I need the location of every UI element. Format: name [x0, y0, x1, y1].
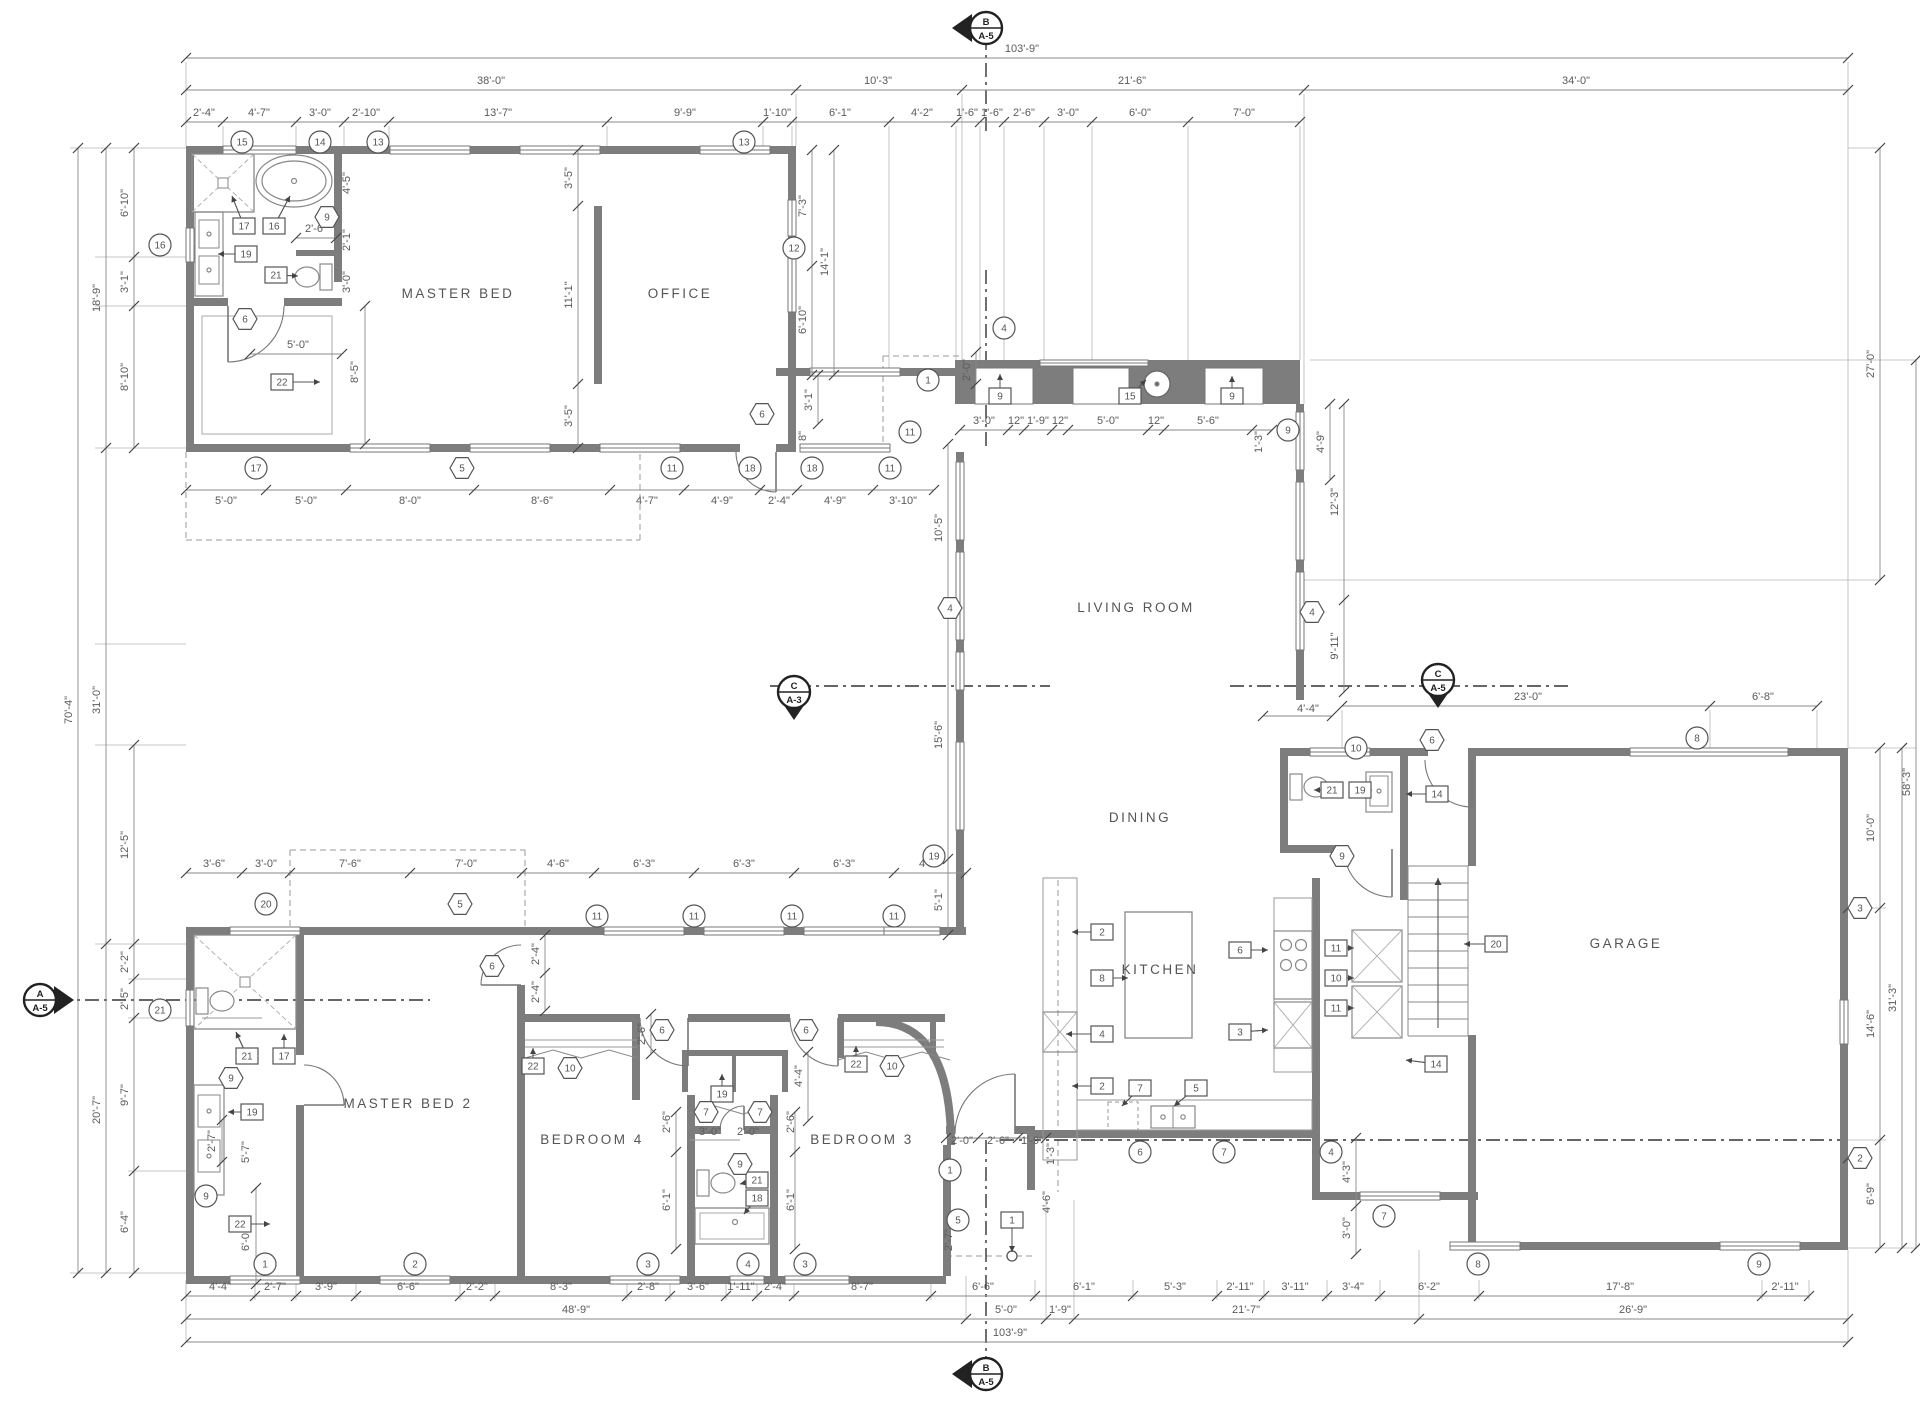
dim-label: 4'-6" [1041, 1191, 1053, 1213]
door-tag-7: 7 [748, 1102, 772, 1123]
window-tag-21: 21 [149, 999, 171, 1021]
window-tag-label: 9 [1285, 426, 1291, 437]
dim-label: 3'-5" [563, 167, 575, 189]
dim-label: 8'-5" [349, 361, 361, 383]
dim-label: 4'-6" [547, 858, 569, 870]
door-tag-10: 10 [558, 1058, 582, 1079]
dim-label: 3'-0" [341, 271, 353, 293]
dim-label: 2'-2" [466, 1281, 488, 1293]
door-tag-6: 6 [233, 309, 257, 330]
section-letter: B [983, 1363, 990, 1374]
window-tag-label: 11 [667, 464, 678, 475]
dim-label: 6'-6" [397, 1281, 419, 1293]
window-tag-7: 7 [1213, 1141, 1235, 1163]
section-sheet: A-5 [32, 1003, 48, 1014]
dim-label: 12'-3" [1329, 488, 1341, 516]
dim-label: 3'-0" [699, 1126, 721, 1138]
window-tag-11: 11 [879, 457, 901, 479]
window-tag-label: 19 [928, 852, 940, 863]
note-tag-label: 21 [270, 271, 282, 282]
door-tag-7: 7 [694, 1102, 718, 1123]
window-tag-4: 4 [993, 317, 1015, 339]
note-tag-22: 22 [271, 374, 293, 390]
dim-label: 12'-5" [119, 831, 131, 859]
door-tag-label: 7 [757, 1108, 763, 1119]
note-tag-label: 2 [1099, 1082, 1105, 1093]
dim-label: 31'-0" [91, 686, 103, 714]
note-tag-20: 20 [1485, 936, 1507, 952]
window-tag-11: 11 [883, 905, 905, 927]
door-tag-9: 9 [219, 1068, 243, 1089]
dim-label: 31'-3" [1887, 984, 1899, 1012]
dim-label: 2'-1" [341, 229, 353, 251]
window-tag-16: 16 [149, 234, 171, 256]
door-tag-9: 9 [728, 1154, 752, 1175]
window-tag-8: 8 [1467, 1253, 1489, 1275]
door-tag-label: 9 [1339, 852, 1345, 863]
note-tag-16: 16 [263, 218, 285, 234]
window-tag-label: 14 [314, 138, 326, 149]
door-tag-6: 6 [650, 1020, 674, 1041]
dim-label: 5'-7" [240, 1141, 252, 1163]
section-sheet: A-5 [1430, 683, 1446, 694]
note-tag-7: 7 [1129, 1080, 1151, 1096]
door-tag-label: 5 [457, 900, 463, 911]
note-tag-11: 11 [1325, 1000, 1347, 1016]
window-tag-9: 9 [1277, 419, 1299, 441]
note-tag-label: 15 [1124, 392, 1136, 403]
door-tag-label: 10 [886, 1062, 898, 1073]
note-tag-17: 17 [233, 218, 255, 234]
floor-plan-drawing: 103'-9"38'-0"10'-3"21'-6"34'-0"2'-4"4'-7… [0, 0, 1920, 1404]
dim-label: 103'-9" [1005, 43, 1039, 55]
dim-label: 2'-4" [764, 1281, 786, 1293]
note-tag-19: 19 [241, 1104, 263, 1120]
note-tag-8: 8 [1091, 970, 1113, 986]
window-tag-label: 11 [885, 464, 896, 475]
window-tag-10: 10 [1345, 737, 1367, 759]
note-tag-9: 9 [989, 388, 1011, 404]
note-tag-21: 21 [265, 267, 287, 283]
note-tag-15: 15 [1119, 388, 1141, 404]
dim-label: 9'-9" [674, 107, 696, 119]
window-tag-11: 11 [781, 905, 803, 927]
note-tag-18: 18 [746, 1190, 768, 1206]
dim-label: 3'-0" [309, 107, 331, 119]
dim-label: 1'-9" [1049, 1304, 1071, 1316]
note-tag-label: 18 [751, 1194, 763, 1205]
note-tag-14: 14 [1425, 1056, 1447, 1072]
window-tag-label: 18 [744, 464, 756, 475]
door-tag-label: 7 [703, 1108, 709, 1119]
dim-label: 1'-10" [763, 107, 791, 119]
dim-label: 7'-6" [339, 858, 361, 870]
dim-label: 4'-4" [209, 1281, 231, 1293]
note-tag-label: 21 [1326, 786, 1338, 797]
dim-label: 1'-3" [1253, 431, 1265, 453]
window-tag-8: 8 [1686, 727, 1708, 749]
dim-label: 8'-10" [119, 363, 131, 391]
dim-label: 8'-6" [531, 495, 553, 507]
window-tag-label: 11 [905, 428, 916, 439]
dim-label: 4'-5" [341, 172, 353, 194]
note-tag-label: 22 [234, 1220, 246, 1231]
dim-label: 3'-0" [1057, 107, 1079, 119]
section-sheet: A-5 [978, 31, 994, 42]
note-tag-2: 2 [1091, 1078, 1113, 1094]
door-tag-label: 3 [1857, 904, 1863, 915]
door-tag-10: 10 [880, 1056, 904, 1077]
dim-label: 5'-0" [287, 339, 309, 351]
dim-label: 3'-6" [687, 1281, 709, 1293]
dim-label: 6'-4" [119, 1211, 131, 1233]
door-tag-label: 5 [459, 464, 465, 475]
door-tag-label: 6 [659, 1026, 665, 1037]
window-tag-18: 18 [739, 457, 761, 479]
window-tag-label: 10 [1350, 744, 1362, 755]
note-tag-label: 14 [1430, 1060, 1442, 1071]
dim-label: 12" [1008, 415, 1024, 427]
note-tag-17: 17 [273, 1048, 295, 1064]
dim-label: 8" [797, 431, 809, 441]
note-tag-label: 22 [850, 1060, 862, 1071]
dim-label: 12" [1148, 415, 1164, 427]
note-tag-4: 4 [1091, 1026, 1113, 1042]
dim-label: 6'-10" [119, 189, 131, 217]
note-tag-label: 11 [1331, 1004, 1342, 1015]
dim-label: 3'-0" [973, 415, 995, 427]
dim-label: 2'-10" [352, 107, 380, 119]
dim-label: 6'-1" [829, 107, 851, 119]
window-tag-label: 5 [955, 1216, 961, 1227]
section-sheet: A-5 [978, 1377, 994, 1388]
door-tag-label: 9 [228, 1074, 234, 1085]
window-tag-1: 1 [254, 1253, 276, 1275]
room-label-bedroom-3: BEDROOM 3 [810, 1132, 914, 1147]
window-tag-label: 11 [787, 912, 798, 923]
note-tag-label: 19 [246, 1108, 258, 1119]
dim-label: 3'-10" [889, 495, 917, 507]
dim-label: 7'-0" [455, 858, 477, 870]
note-tag-14: 14 [1426, 786, 1448, 802]
dim-label: 48'-9" [562, 1304, 590, 1316]
door-tag-6: 6 [1420, 730, 1444, 751]
window-tag-label: 1 [947, 1166, 953, 1177]
dim-label: 14'-1" [819, 248, 831, 276]
door-tag-label: 4 [1309, 608, 1315, 619]
dim-label: 3'-6" [203, 858, 225, 870]
dim-label: 2'-11" [1771, 1281, 1798, 1293]
note-tag-21: 21 [236, 1048, 258, 1064]
dim-label: 5'-0" [295, 495, 317, 507]
dim-label: 9'-7" [119, 1084, 131, 1106]
dim-label: 4'-4" [1297, 703, 1319, 715]
dim-label: 10'-5" [933, 514, 945, 542]
dim-label: 9'-11" [1329, 632, 1341, 659]
dim-label: 2'-11" [1226, 1281, 1253, 1293]
dim-label: 21'-6" [1118, 75, 1146, 87]
window-tag-11: 11 [683, 905, 705, 927]
note-tag-19: 19 [235, 246, 257, 262]
dim-label: 5'-6" [1197, 415, 1219, 427]
window-tag-label: 17 [250, 464, 262, 475]
note-tag-label: 11 [1331, 944, 1342, 955]
dim-label: 8'-0" [399, 495, 421, 507]
dim-label: 27'-0" [1865, 350, 1877, 378]
dim-label: 12" [1052, 415, 1068, 427]
note-tag-3: 3 [1229, 1024, 1251, 1040]
window-tag-label: 1 [925, 376, 931, 387]
note-tag-label: 9 [997, 392, 1003, 403]
dim-label: 1'-9" [1027, 415, 1049, 427]
note-tag-21: 21 [1321, 782, 1343, 798]
note-tag-label: 20 [1490, 940, 1502, 951]
note-tag-label: 9 [1229, 392, 1235, 403]
window-tag-11: 11 [899, 421, 921, 443]
door-tag-2: 2 [1848, 1148, 1872, 1169]
dim-label: 6'-3" [733, 858, 755, 870]
dim-label: 11'-1" [563, 281, 575, 308]
window-tag-6: 6 [1129, 1141, 1151, 1163]
window-tag-label: 3 [802, 1260, 808, 1271]
door-tag-label: 2 [1857, 1154, 1863, 1165]
dim-label: 7'-3" [797, 195, 809, 217]
note-tag-label: 21 [751, 1176, 763, 1187]
window-tag-label: 15 [236, 138, 248, 149]
window-tag-2: 2 [404, 1253, 426, 1275]
door-tag-4: 4 [938, 598, 962, 619]
window-tag-label: 9 [203, 1192, 209, 1203]
note-tag-label: 22 [276, 378, 288, 389]
dim-label: 5'-1" [933, 889, 945, 911]
dim-label: 2'-0" [951, 1135, 973, 1147]
dim-label: 4'-7" [636, 495, 658, 507]
note-tag-10: 10 [1325, 970, 1347, 986]
window-tag-label: 20 [260, 900, 272, 911]
door-tag-label: 6 [803, 1026, 809, 1037]
note-tag-2: 2 [1091, 924, 1113, 940]
section-letter: B [983, 17, 990, 28]
window-tag-19: 19 [923, 845, 945, 867]
window-tag-label: 11 [592, 912, 603, 923]
door-tag-label: 4 [947, 604, 953, 615]
dim-label: 3'-5" [563, 405, 575, 427]
note-tag-label: 19 [1354, 786, 1366, 797]
window-tag-label: 12 [788, 244, 800, 255]
note-tag-label: 19 [240, 250, 252, 261]
dim-label: 8'-3" [550, 1281, 572, 1293]
floorplan-sheet: 103'-9"38'-0"10'-3"21'-6"34'-0"2'-4"4'-7… [0, 0, 1920, 1404]
dim-label: 4'-9" [824, 495, 846, 507]
section-letter: A [37, 989, 44, 1000]
dim-label: 1'-3" [1045, 1143, 1057, 1165]
window-tag-label: 8 [1694, 734, 1700, 745]
dim-label: 3'-11" [1281, 1281, 1308, 1293]
room-label-bedroom-4: BEDROOM 4 [540, 1132, 644, 1147]
dim-label: 2'-8" [637, 1281, 659, 1293]
dim-label: 10'-0" [1865, 814, 1877, 842]
dim-label: 8'-7" [851, 1281, 873, 1293]
window-tag-label: 11 [889, 912, 900, 923]
room-label-master-bed: MASTER BED [402, 286, 515, 301]
dim-label: 5'-0" [215, 495, 237, 507]
porch-column [1007, 1251, 1017, 1261]
door-tag-5: 5 [448, 894, 472, 915]
dim-label: 6'-10" [797, 306, 809, 334]
note-tag-11: 11 [1325, 940, 1347, 956]
dim-label: 2'-4" [768, 495, 790, 507]
note-tag-22: 22 [522, 1058, 544, 1074]
window-tag-14: 14 [309, 131, 331, 153]
window-tag-1: 1 [917, 369, 939, 391]
note-tag-label: 10 [1330, 974, 1342, 985]
window-tag-label: 4 [1001, 324, 1007, 335]
dim-label: 3'-9" [315, 1281, 337, 1293]
note-tag-19: 19 [711, 1086, 733, 1102]
dim-label: 2'-4" [193, 107, 215, 119]
window-tag-9: 9 [1748, 1253, 1770, 1275]
door-tag-3: 3 [1848, 898, 1872, 919]
section-sheet: A-3 [786, 695, 801, 706]
window-tag-13: 13 [367, 131, 389, 153]
dim-label: 6'-3" [833, 858, 855, 870]
door-tag-5: 5 [450, 458, 474, 479]
door-tag-6: 6 [480, 956, 504, 977]
room-label-kitchen: KITCHEN [1122, 962, 1199, 977]
door-tag-label: 10 [564, 1064, 576, 1075]
dim-label: 6'-0" [1129, 107, 1151, 119]
window-tag-label: 2 [412, 1260, 418, 1271]
dim-label: 6'-3" [633, 858, 655, 870]
dim-label: 2'-0" [737, 1126, 759, 1138]
door-tag-label: 9 [324, 213, 330, 224]
dim-label: 17'-8" [1606, 1281, 1634, 1293]
dim-label: 26'-9" [1619, 1304, 1647, 1316]
note-tag-21: 21 [746, 1172, 768, 1188]
window-tag-3: 3 [794, 1253, 816, 1275]
dim-label: 6'-8" [1752, 691, 1774, 703]
note-tag-label: 2 [1099, 928, 1105, 939]
door-tag-label: 6 [1429, 736, 1435, 747]
dim-label: 7'-0" [1233, 107, 1255, 119]
note-tag-5: 5 [1185, 1080, 1207, 1096]
window-tag-1: 1 [939, 1159, 961, 1181]
dim-label: 4'-7" [248, 107, 270, 119]
dim-label: 3'-1" [803, 389, 815, 411]
window-tag-17: 17 [245, 457, 267, 479]
dim-label: 34'-0" [1562, 75, 1590, 87]
note-tag-9: 9 [1221, 388, 1243, 404]
dim-label: 6'-6" [972, 1281, 994, 1293]
dim-label: 4'-3" [1341, 1161, 1353, 1183]
window-tag-label: 18 [806, 464, 818, 475]
dim-label: 38'-0" [477, 75, 505, 87]
dim-label: 6'-1" [661, 1189, 673, 1211]
toilet [295, 264, 332, 290]
window-tag-4: 4 [737, 1253, 759, 1275]
note-tag-22: 22 [229, 1216, 251, 1232]
window-tag-18: 18 [801, 457, 823, 479]
note-tag-label: 8 [1099, 974, 1105, 985]
dim-label: 2'-0" [961, 359, 973, 381]
window-tag-13: 13 [733, 131, 755, 153]
door-tag-label: 6 [489, 962, 495, 973]
dim-label: 2'-6" [987, 1135, 1009, 1147]
window-tag-label: 11 [689, 912, 700, 923]
dim-label: 13'-7" [484, 107, 512, 119]
dim-label: 2'-5" [119, 988, 131, 1010]
note-tag-label: 22 [527, 1062, 539, 1073]
dim-label: 2'-2" [119, 951, 131, 973]
room-label-living-room: LIVING ROOM [1077, 600, 1195, 615]
note-tag-6: 6 [1229, 942, 1251, 958]
note-tag-label: 21 [241, 1052, 253, 1063]
window-tag-label: 8 [1475, 1260, 1481, 1271]
dim-label: 2'-6" [785, 1111, 797, 1133]
dim-label: 3'-0" [255, 858, 277, 870]
note-tag-label: 3 [1237, 1028, 1243, 1039]
dim-label: 4'-2" [911, 107, 933, 119]
dim-label: 2'-6" [636, 1023, 648, 1045]
dim-label: 2'-4" [530, 943, 542, 965]
window-tag-label: 6 [1137, 1148, 1143, 1159]
note-tag-label: 17 [278, 1052, 290, 1063]
window-tag-label: 3 [645, 1260, 651, 1271]
note-tag-19: 19 [1349, 782, 1371, 798]
window-tag-9: 9 [195, 1185, 217, 1207]
dim-label: 14'-6" [1865, 1010, 1877, 1038]
window-tag-20: 20 [255, 893, 277, 915]
dim-label: 1'-11" [727, 1281, 754, 1293]
dim-label: 6'-9" [1865, 1183, 1877, 1205]
dim-label: 18'-9" [91, 284, 103, 312]
door-tag-6: 6 [750, 404, 774, 425]
window-tag-label: 16 [154, 241, 166, 252]
dim-label: 1'-9" [1021, 1135, 1043, 1147]
note-tag-1: 1 [1001, 1212, 1023, 1228]
door-tag-label: 6 [242, 315, 248, 326]
window-tag-12: 12 [783, 237, 805, 259]
dim-label: 2'-6" [1013, 107, 1035, 119]
note-tag-label: 17 [238, 222, 250, 233]
dim-label: 6'-2" [1418, 1281, 1440, 1293]
dim-label: 5'-0" [995, 1304, 1017, 1316]
fireplace [1144, 371, 1170, 397]
door-tag-label: 9 [737, 1160, 743, 1171]
dim-label: 3'-1" [119, 271, 131, 293]
dim-label: 4'-9" [711, 495, 733, 507]
door-tag-4: 4 [1300, 602, 1324, 623]
dim-label: 6'-1" [1073, 1281, 1095, 1293]
dim-label: 58'-3" [1901, 768, 1913, 796]
dim-label: 5'-0" [1097, 415, 1119, 427]
note-tag-label: 5 [1193, 1084, 1199, 1095]
door-tag-9: 9 [1330, 846, 1354, 867]
dim-label: 20'-7" [91, 1096, 103, 1124]
window-tag-label: 4 [1328, 1148, 1334, 1159]
window-tag-label: 7 [1381, 1212, 1387, 1223]
note-tag-label: 4 [1099, 1030, 1105, 1041]
window-tag-label: 13 [372, 138, 384, 149]
door-tag-6: 6 [794, 1020, 818, 1041]
window-tag-4: 4 [1320, 1141, 1342, 1163]
window-tag-11: 11 [661, 457, 683, 479]
dim-label: 103'-9" [993, 1327, 1027, 1339]
window-tag-5: 5 [947, 1209, 969, 1231]
dim-label: 5'-3" [1164, 1281, 1186, 1293]
dim-label: 1'-6" [956, 107, 978, 119]
dim-label: 4'-9" [1315, 431, 1327, 453]
